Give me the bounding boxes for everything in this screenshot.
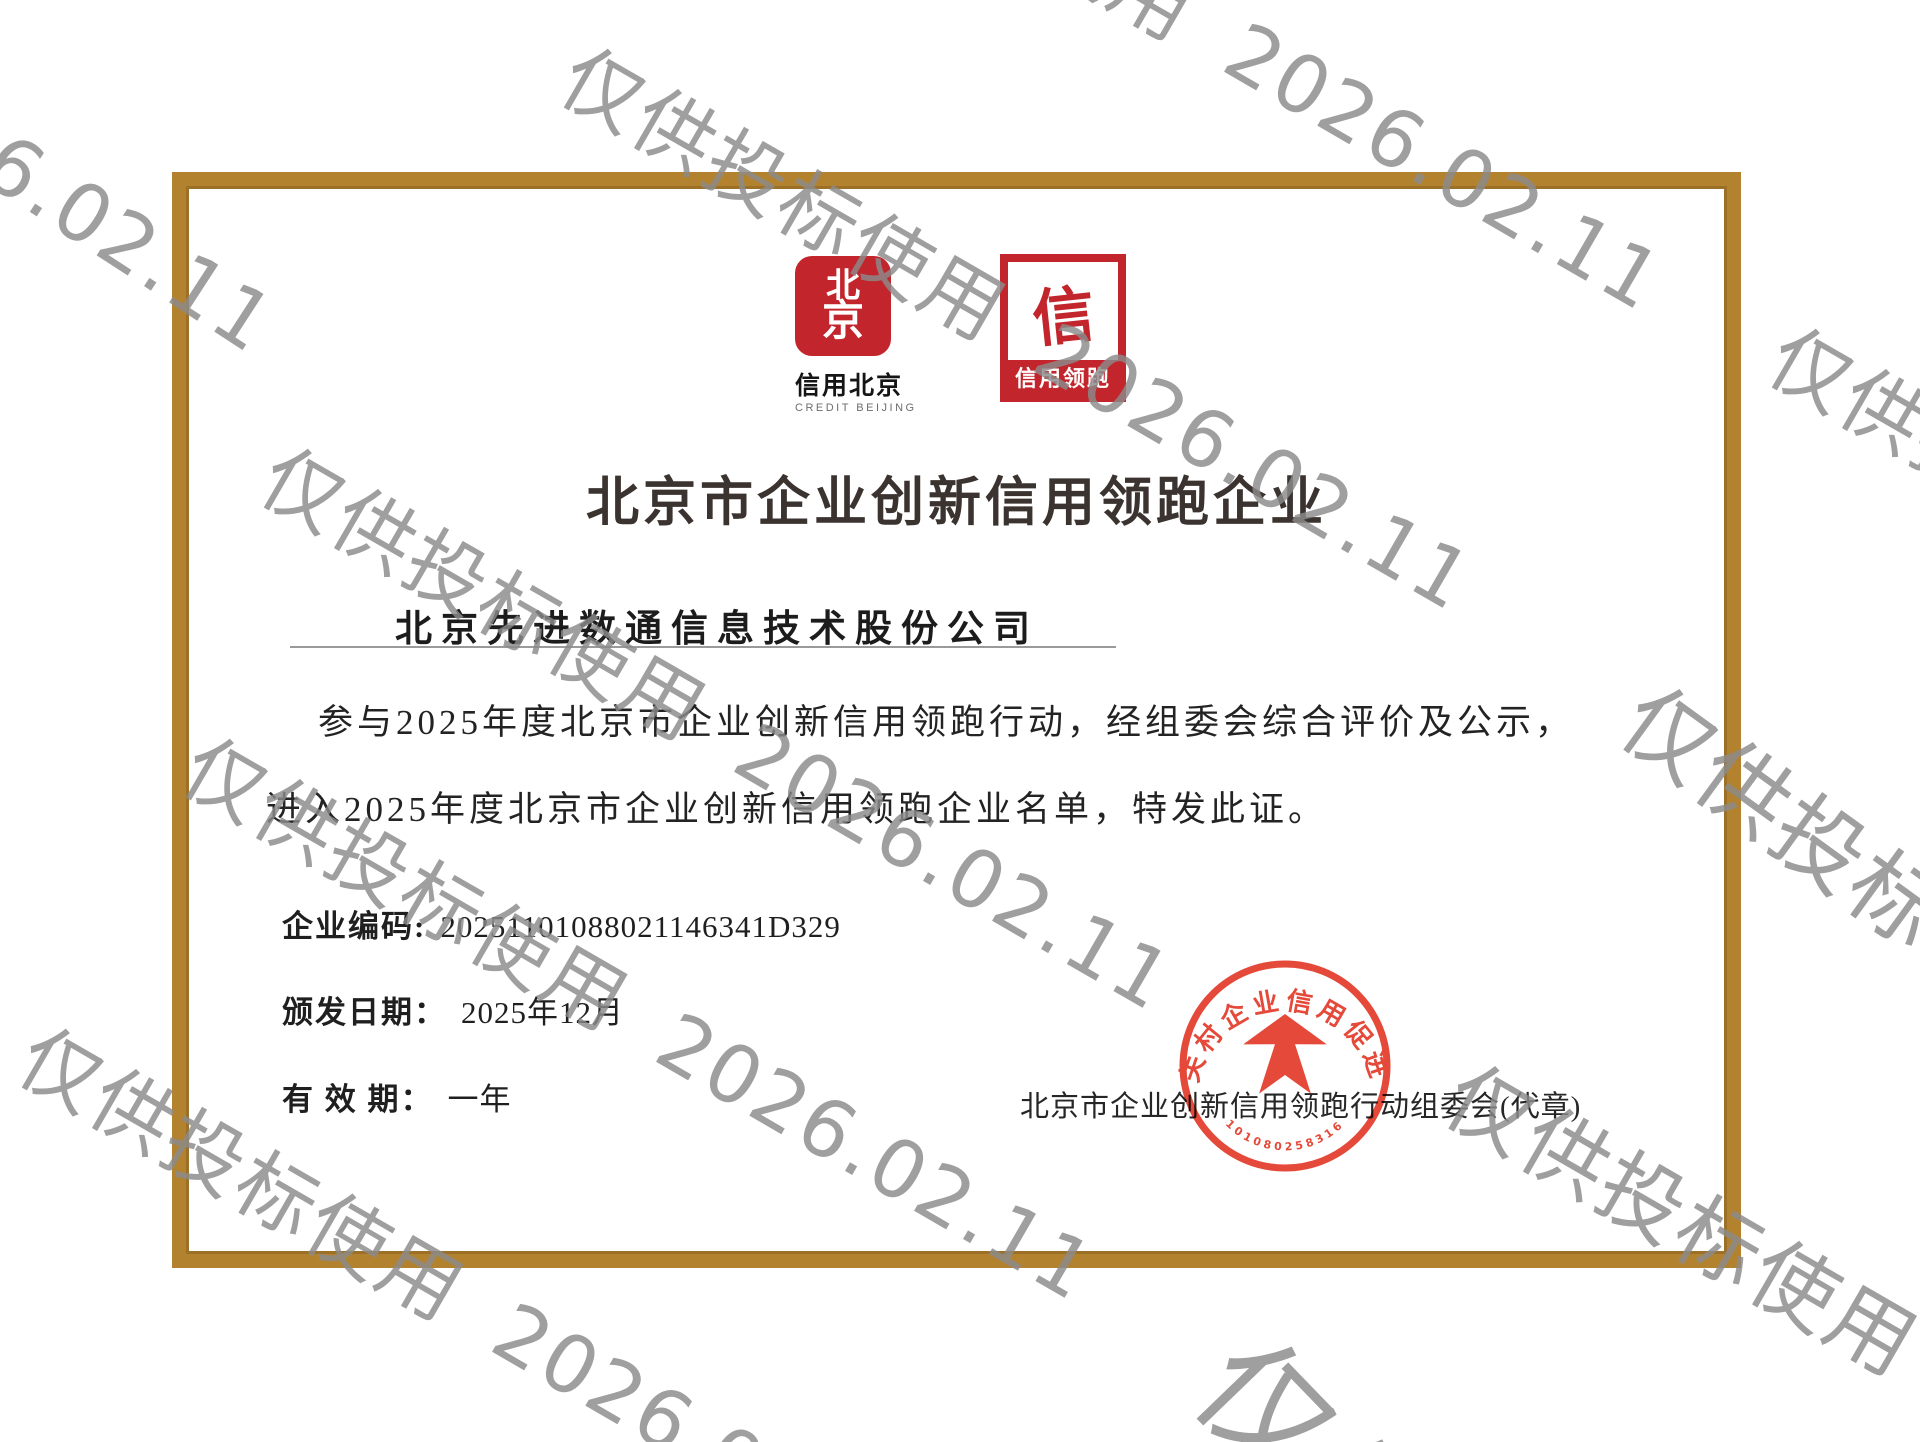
certificate-page: 北 京 信用北京 CREDIT BEIJING 信 信用领跑 北京市企业创新信用… xyxy=(0,0,1920,1442)
field-issue-date-label: 颁发日期： xyxy=(282,995,447,1030)
field-validity: 有 效 期：一年 xyxy=(282,1074,512,1119)
company-name: 北京先进数通信息技术股份公司 xyxy=(395,598,1039,652)
field-validity-label: 有 效 期： xyxy=(282,1082,434,1117)
credit-leader-logo-glyph: 信 xyxy=(1003,257,1123,366)
credit-leader-logo-label: 信用领跑 xyxy=(1008,360,1118,394)
credit-beijing-logo-name-cn: 信用北京 xyxy=(795,366,891,402)
logo-glyph-bottom: 京 xyxy=(822,301,864,341)
field-enterprise-code: 企业编码:20251101088021146341D329 xyxy=(282,901,841,946)
watermark-text: 仅供投标使用 2026.02.11 xyxy=(0,1330,1057,1442)
field-enterprise-code-value: 20251101088021146341D329 xyxy=(440,909,841,944)
body-paragraph-line2: 进入2025年度北京市企业创新信用领跑企业名单，特发此证。 xyxy=(266,781,1327,832)
body-paragraph-line1: 参与2025年度北京市企业创新信用领跑行动，经组委会综合评价及公示， xyxy=(318,694,1574,745)
seal-star xyxy=(1243,1014,1327,1094)
credit-leader-logo: 信 信用领跑 xyxy=(1000,254,1126,402)
official-seal: 中关村企业信用促进会 11010802583164 xyxy=(1173,956,1397,1180)
credit-beijing-logo: 北 京 信用北京 CREDIT BEIJING xyxy=(795,256,891,414)
watermark-text: 仅供投标使用 2026.02.11 xyxy=(1160,1290,1920,1442)
field-issue-date: 颁发日期：2025年12月 xyxy=(282,987,624,1032)
field-validity-value: 一年 xyxy=(448,1082,512,1117)
certificate-title: 北京市企业创新信用领跑企业 xyxy=(188,460,1725,536)
field-enterprise-code-label: 企业编码: xyxy=(282,909,426,944)
field-issue-date-value: 2025年12月 xyxy=(461,995,624,1030)
watermark-text: 仅供投标使用 2026.02.11 xyxy=(1750,295,1920,914)
credit-beijing-logo-name-en: CREDIT BEIJING xyxy=(795,402,891,414)
credit-beijing-logo-icon: 北 京 xyxy=(795,256,891,356)
